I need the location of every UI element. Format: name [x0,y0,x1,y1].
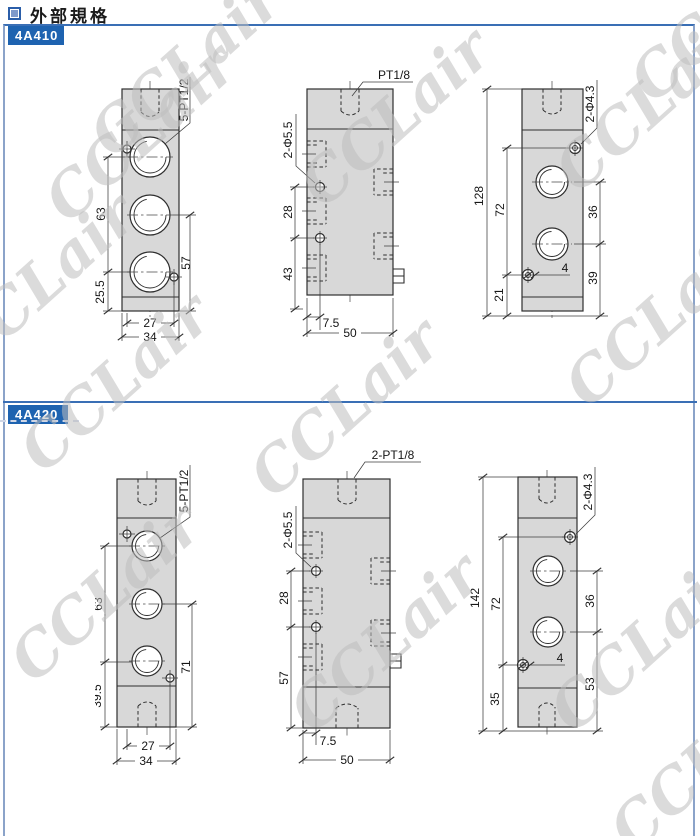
back-dim-total: 128 [472,186,486,206]
front-dim-bottom-outer: 34 [143,330,157,344]
back-dim-offset: 4 [557,651,564,665]
section-divider [3,401,697,403]
back-dim-right-top: 36 [583,594,597,608]
back-dim-bottom-left: 21 [492,288,506,302]
back-dim-bottom-left: 35 [488,692,502,706]
back-dim-mid: 72 [489,597,503,611]
front-dim-bottom-inner: 27 [141,739,155,753]
model-tab-4a410: 4A410 [8,26,64,45]
drawing-4a410-side-view: PT1/8 2-Φ5.5 28 43 7.5 50 [278,48,463,348]
drawing-4a420-side-view: 2-PT1/8 2-Φ5.5 28 57 7.5 50 [278,430,463,775]
side-hole-label: 2-Φ5.5 [281,511,295,548]
side-dim-left-bottom: 43 [281,267,295,281]
side-thread-label: PT1/8 [378,68,410,82]
back-dim-right-bottom: 39 [586,271,600,285]
side-dim-left-bottom: 57 [278,671,291,685]
side-dim-bottom-outer: 50 [340,753,354,767]
page-title: 外部規格 [30,2,110,27]
back-dim-mid: 72 [493,203,507,217]
back-dim-total: 142 [468,588,482,608]
back-dim-offset: 4 [562,261,569,275]
side-hole-label: 2-Φ5.5 [281,121,295,158]
front-dim-bottom-outer: 34 [139,754,153,768]
drawing-4a420-front-view: 5-PT1/2 63 39.5 71 27 34 [95,440,245,770]
side-dim-bottom-inner: 7.5 [320,734,337,748]
dashed-underline [0,420,79,422]
side-thread-label: 2-PT1/8 [372,448,415,462]
drawing-4a420-back-view: 2-Φ4.3 142 72 35 36 53 4 [462,430,672,775]
side-dim-bottom-inner: 7.5 [323,316,340,330]
front-dim-left-bottom: 25.5 [95,280,107,304]
side-dim-left-top: 28 [278,591,291,605]
front-thread-label: 5-PT1/2 [177,469,191,512]
back-hole-label: 2-Φ4.3 [581,473,595,510]
front-dim-right: 71 [179,660,193,674]
section-bullet-icon [8,7,21,20]
front-dim-left-bottom: 39.5 [95,684,104,708]
back-dim-right-top: 36 [586,205,600,219]
back-hole-label: 2-Φ4.3 [583,85,597,122]
front-dim-bottom-inner: 27 [143,316,157,330]
side-dim-left-top: 28 [281,205,295,219]
drawing-4a410-front-view: 5-PT1/2 63 25.5 57 27 34 [95,55,245,365]
drawing-4a410-back-view: 2-Φ4.3 128 72 21 36 39 4 [462,48,672,358]
side-dim-bottom-outer: 50 [343,326,357,340]
front-dim-right: 57 [179,256,193,270]
spec-page: 外部規格 4A410 4A420 5-PT1/2 63 25.5 57 27 3… [0,0,700,836]
front-dim-left-top: 63 [95,597,105,611]
back-dim-right-bottom: 53 [583,677,597,691]
front-thread-label: 5-PT1/2 [177,78,191,121]
front-dim-left-top: 63 [95,207,108,221]
